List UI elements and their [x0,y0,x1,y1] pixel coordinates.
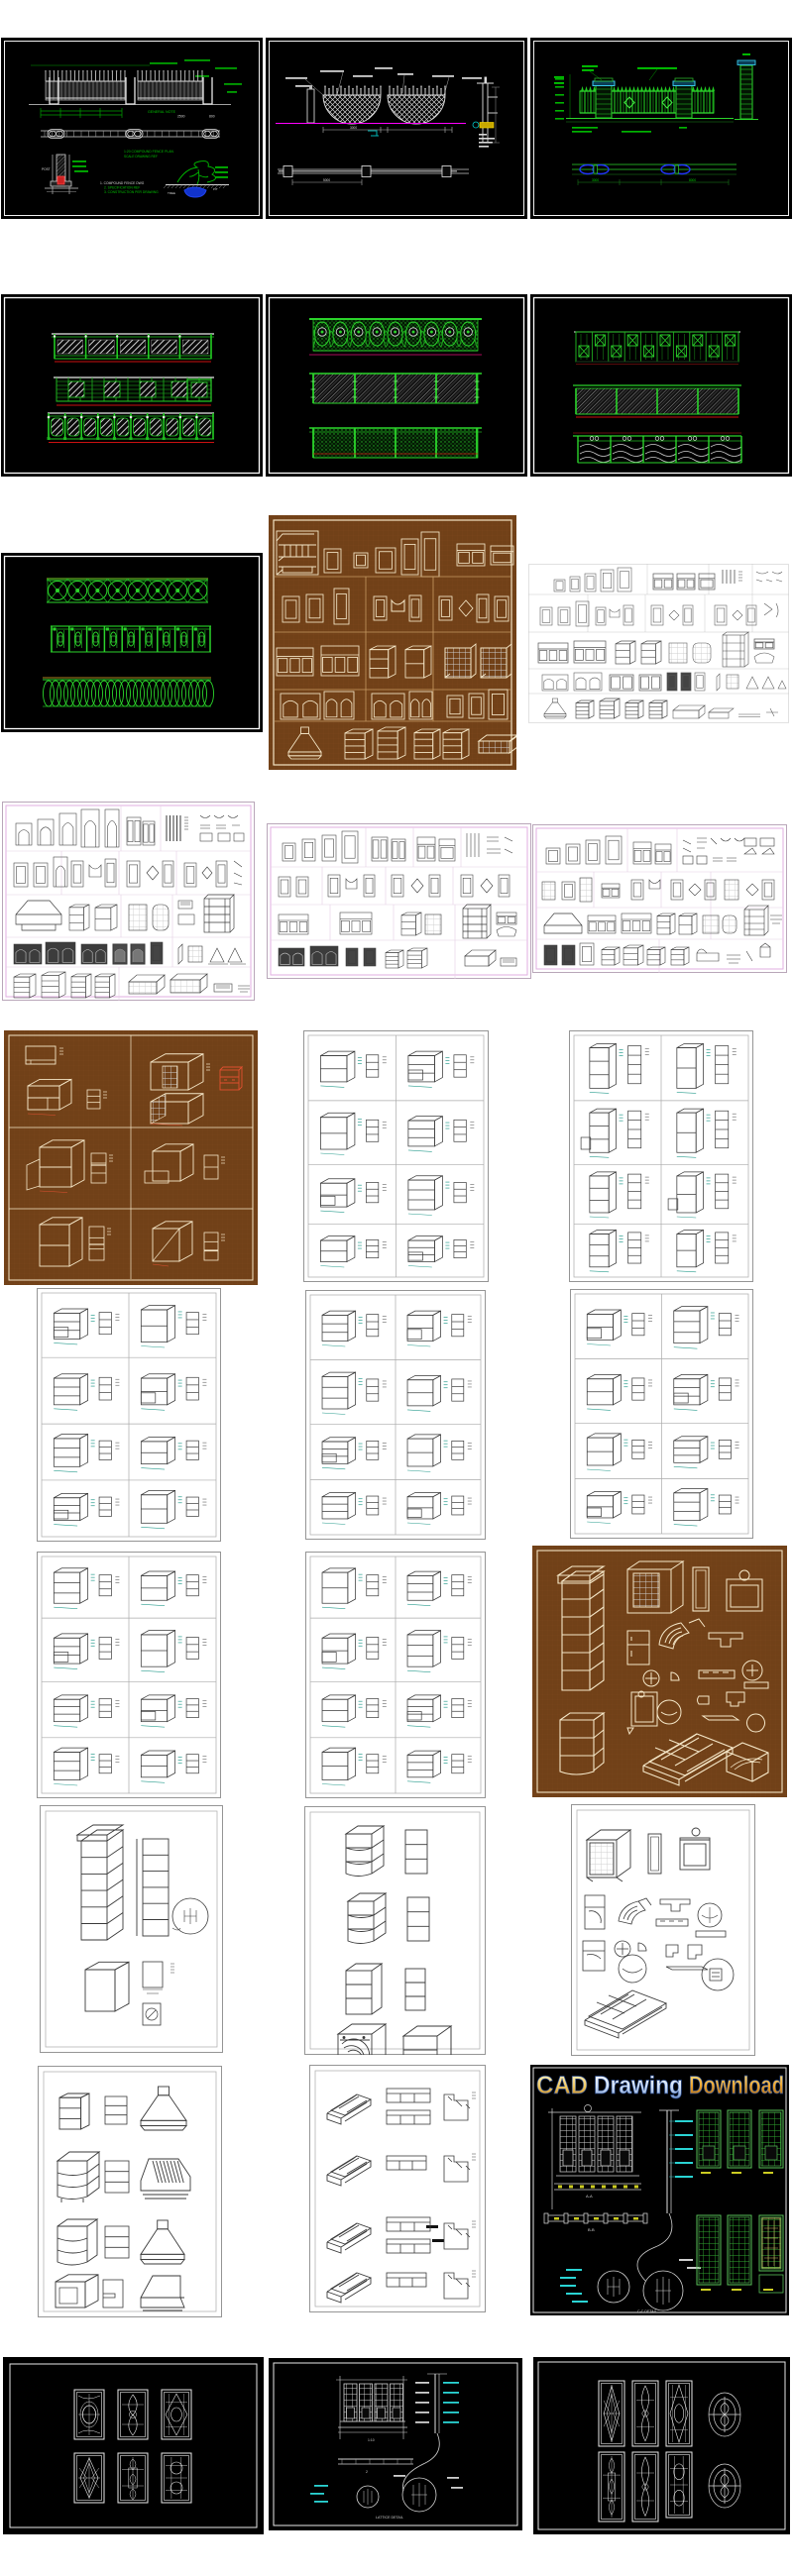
svg-text:PIT: PIT [213,187,218,191]
svg-text:Download: Download [689,2072,784,2099]
svg-text:5000: 5000 [323,178,330,182]
svg-text:C-C DETAIL: C-C DETAIL [637,2309,657,2313]
svg-text:LATTICE DETAIL: LATTICE DETAIL [376,2516,403,2520]
svg-text:A-A: A-A [586,2194,593,2199]
svg-text:3000: 3000 [350,126,357,130]
svg-text:1:20 COMPOUND FENCE PLAN: 1:20 COMPOUND FENCE PLAN [124,150,173,154]
svg-text:2500: 2500 [177,115,185,119]
svg-text:2: 2 [366,2470,368,2474]
svg-text:1:10: 1:10 [368,2438,375,2442]
svg-text:GENERAL NOTE: GENERAL NOTE [148,110,176,114]
svg-text:3000: 3000 [592,178,599,182]
svg-text:CAD: CAD [536,2072,588,2099]
svg-text:2. SPECIFICATION REF: 2. SPECIFICATION REF [104,186,140,190]
svg-text:B-B: B-B [588,2227,595,2232]
svg-text:SCALE DRAWING REF: SCALE DRAWING REF [124,155,158,159]
svg-text:3. CONSTRUCTION PER DRAWING: 3. CONSTRUCTION PER DRAWING [104,190,159,194]
svg-text:800: 800 [209,115,215,119]
svg-text:Drawing: Drawing [594,2072,683,2099]
svg-text:8000: 8000 [689,178,696,182]
svg-text:TREE: TREE [168,191,175,195]
svg-text:1. COMPOUND FENCE DWG: 1. COMPOUND FENCE DWG [100,181,145,185]
svg-text:POST: POST [42,167,51,171]
